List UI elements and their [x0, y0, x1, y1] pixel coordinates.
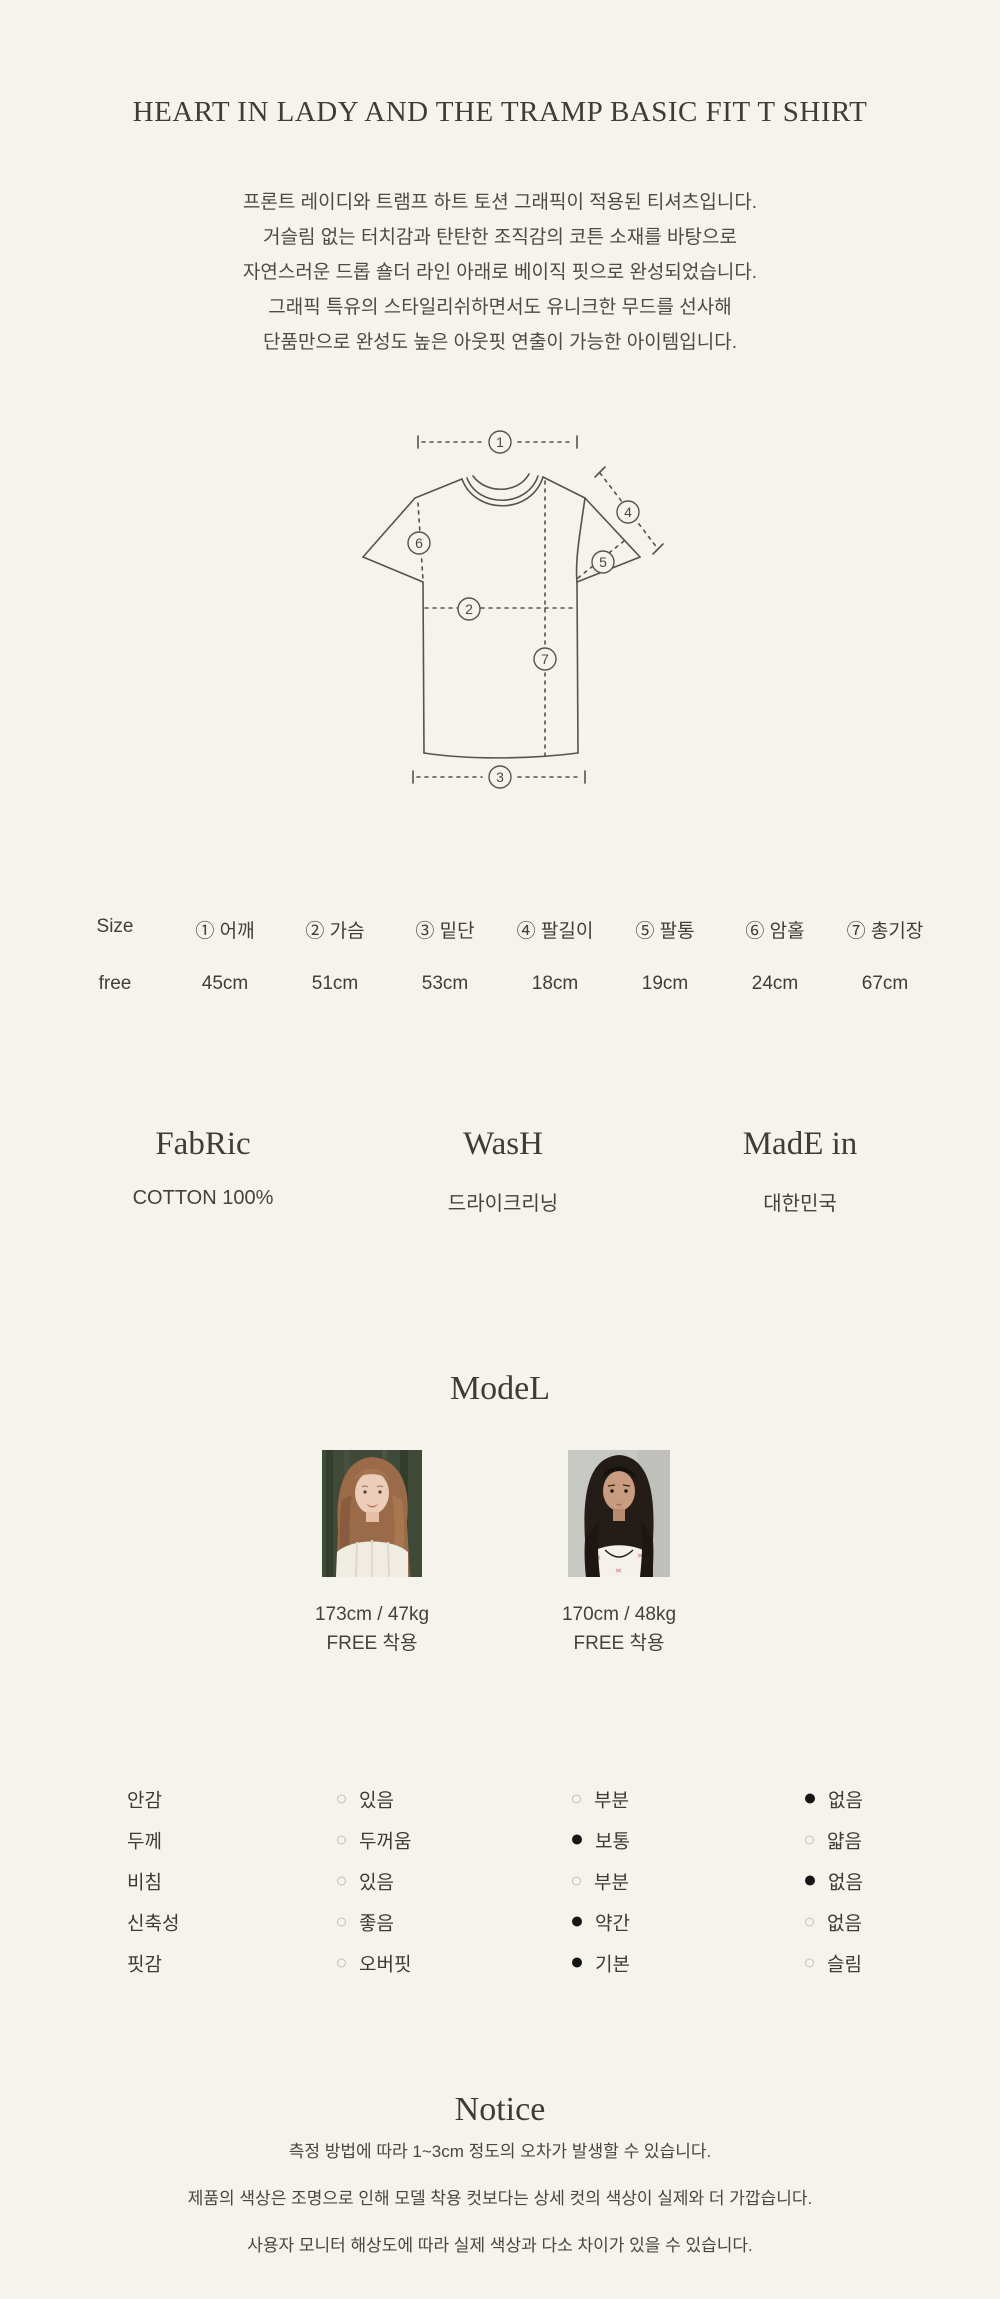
radio-icon [805, 1958, 814, 1967]
attribute-label: 비침 [127, 1867, 162, 1894]
attribute-option-label: 보통 [595, 1826, 630, 1853]
fabric-heading: FabRic [83, 1126, 323, 1163]
radio-icon [337, 1917, 346, 1926]
wash-section: WasH 드라이크리닝 [383, 1126, 623, 1216]
attribute-option: 부분 [572, 1785, 629, 1812]
attribute-option: 오버핏 [337, 1949, 411, 1976]
diagram-marker-3: 3 [496, 769, 504, 785]
attribute-option: 기본 [572, 1949, 630, 1976]
attribute-option-label: 없음 [827, 1908, 862, 1935]
wash-heading: WasH [383, 1126, 623, 1163]
attribute-option: 없음 [805, 1785, 863, 1812]
product-detail-page: HEART IN LADY AND THE TRAMP BASIC FIT T … [0, 0, 1000, 2299]
size-col-header: ⑥ 암홀 [720, 916, 830, 943]
diagram-marker-1: 1 [496, 434, 504, 450]
attribute-option-label: 없음 [828, 1785, 863, 1812]
attribute-row-fit: 핏감 오버핏 기본 슬림 [0, 1942, 1000, 1983]
notice-heading: Notice [0, 2091, 1000, 2129]
attribute-row-thickness: 두께 두꺼움 보통 얇음 [0, 1819, 1000, 1860]
size-cell: 45cm [170, 973, 280, 995]
radio-icon [805, 1917, 814, 1926]
size-col-header: ⑦ 총기장 [830, 916, 940, 943]
radio-icon [805, 1835, 814, 1844]
attribute-option: 없음 [805, 1908, 862, 1935]
size-cell: 19cm [610, 973, 720, 995]
notice-text: 측정 방법에 따라 1~3cm 정도의 오차가 발생할 수 있습니다. 제품의 … [0, 2128, 1000, 2269]
diagram-marker-2: 2 [465, 601, 473, 617]
diagram-marker-7: 7 [541, 651, 549, 667]
description-line: 프론트 레이디와 트램프 하트 토션 그래픽이 적용된 티셔츠입니다. [0, 185, 1000, 220]
description-line: 거슬림 없는 터치감과 탄탄한 조직감의 코튼 소재를 바탕으로 [0, 220, 1000, 255]
notice-line: 측정 방법에 따라 1~3cm 정도의 오차가 발생할 수 있습니다. [0, 2128, 1000, 2175]
attribute-label: 두께 [127, 1826, 162, 1853]
attribute-option: 얇음 [805, 1826, 862, 1853]
model-photo-dark-haired [568, 1450, 670, 1577]
model-stats: 173cm / 47kg [272, 1600, 472, 1629]
radio-icon [805, 1794, 815, 1804]
size-col-header: ① 어깨 [170, 916, 280, 943]
model-caption: 173cm / 47kg FREE 착용 [272, 1600, 472, 1658]
diagram-marker-4: 4 [624, 504, 632, 520]
diagram-marker-6: 6 [415, 535, 423, 551]
attribute-option-label: 있음 [359, 1785, 394, 1812]
attribute-option-label: 부분 [594, 1785, 629, 1812]
size-cell: 53cm [390, 973, 500, 995]
attribute-option-label: 좋음 [359, 1908, 394, 1935]
radio-icon [337, 1876, 346, 1885]
radio-icon [337, 1794, 346, 1803]
attribute-option-label: 없음 [828, 1867, 863, 1894]
product-title: HEART IN LADY AND THE TRAMP BASIC FIT T … [0, 96, 1000, 129]
attribute-option: 부분 [572, 1867, 629, 1894]
attribute-option-label: 슬림 [827, 1949, 862, 1976]
attribute-row-lining: 안감 있음 부분 없음 [0, 1778, 1000, 1819]
model-fit: FREE 착용 [519, 1629, 719, 1658]
attribute-table: 안감 있음 부분 없음 두께 두꺼움 보통 얇음 비침 있음 부분 없음 신축성… [0, 1778, 1000, 1983]
radio-icon [572, 1917, 582, 1927]
description-line: 그래픽 특유의 스타일리쉬하면서도 유니크한 무드를 선사해 [0, 290, 1000, 325]
radio-icon [337, 1835, 346, 1844]
attribute-label: 신축성 [127, 1908, 179, 1935]
fabric-value: COTTON 100% [83, 1187, 323, 1210]
size-col-header: ③ 밑단 [390, 916, 500, 943]
size-col-header: ② 가슴 [280, 916, 390, 943]
attribute-option-label: 부분 [594, 1867, 629, 1894]
attribute-option: 좋음 [337, 1908, 394, 1935]
notice-line: 사용자 모니터 해상도에 따라 실제 색상과 다소 차이가 있을 수 있습니다. [0, 2222, 1000, 2269]
radio-icon [572, 1958, 582, 1968]
radio-icon [805, 1876, 815, 1886]
attribute-row-stretch: 신축성 좋음 약간 없음 [0, 1901, 1000, 1942]
attribute-label: 핏감 [127, 1949, 162, 1976]
measurement-diagram: 1 2 3 4 5 6 7 [330, 425, 670, 800]
attribute-option-label: 약간 [595, 1908, 630, 1935]
made-in-heading: MadE in [680, 1126, 920, 1163]
model-photo-redhead [322, 1450, 422, 1577]
attribute-option-label: 있음 [359, 1867, 394, 1894]
attribute-row-sheerness: 비침 있음 부분 없음 [0, 1860, 1000, 1901]
model-stats: 170cm / 48kg [519, 1600, 719, 1629]
model-fit: FREE 착용 [272, 1629, 472, 1658]
size-col-header: ⑤ 팔통 [610, 916, 720, 943]
size-table: Size ① 어깨 ② 가슴 ③ 밑단 ④ 팔길이 ⑤ 팔통 ⑥ 암홀 ⑦ 총기… [60, 916, 940, 995]
size-table-row: free 45cm 51cm 53cm 18cm 19cm 24cm 67cm [60, 973, 940, 995]
attribute-option: 약간 [572, 1908, 630, 1935]
size-cell: 51cm [280, 973, 390, 995]
notice-line: 제품의 색상은 조명으로 인해 모델 착용 컷보다는 상세 컷의 색상이 실제와… [0, 2175, 1000, 2222]
radio-icon [572, 1835, 582, 1845]
attribute-option-label: 두꺼움 [359, 1826, 411, 1853]
attribute-option: 슬림 [805, 1949, 862, 1976]
attribute-label: 안감 [127, 1785, 162, 1812]
tshirt-line-drawing-icon: 1 2 3 4 5 6 7 [330, 425, 670, 800]
size-cell: 18cm [500, 973, 610, 995]
attribute-option: 없음 [805, 1867, 863, 1894]
attribute-option-label: 오버핏 [359, 1949, 411, 1976]
made-in-value: 대한민국 [680, 1187, 920, 1216]
size-col-header: Size [60, 916, 170, 943]
attribute-option: 있음 [337, 1867, 394, 1894]
diagram-marker-5: 5 [599, 554, 607, 570]
attribute-option: 두꺼움 [337, 1826, 411, 1853]
size-cell: free [60, 973, 170, 995]
size-col-header: ④ 팔길이 [500, 916, 610, 943]
attribute-option-label: 얇음 [827, 1826, 862, 1853]
radio-icon [572, 1876, 581, 1885]
radio-icon [572, 1794, 581, 1803]
size-cell: 67cm [830, 973, 940, 995]
size-cell: 24cm [720, 973, 830, 995]
attribute-option: 보통 [572, 1826, 630, 1853]
model-heading: ModeL [0, 1370, 1000, 1408]
fabric-section: FabRic COTTON 100% [83, 1126, 323, 1210]
attribute-option-label: 기본 [595, 1949, 630, 1976]
description-line: 단품만으로 완성도 높은 아웃핏 연출이 가능한 아이템입니다. [0, 325, 1000, 360]
model-caption: 170cm / 48kg FREE 착용 [519, 1600, 719, 1658]
radio-icon [337, 1958, 346, 1967]
wash-value: 드라이크리닝 [383, 1187, 623, 1216]
attribute-option: 있음 [337, 1785, 394, 1812]
description-line: 자연스러운 드롭 숄더 라인 아래로 베이직 핏으로 완성되었습니다. [0, 255, 1000, 290]
size-table-header: Size ① 어깨 ② 가슴 ③ 밑단 ④ 팔길이 ⑤ 팔통 ⑥ 암홀 ⑦ 총기… [60, 916, 940, 943]
made-in-section: MadE in 대한민국 [680, 1126, 920, 1216]
product-description: 프론트 레이디와 트램프 하트 토션 그래픽이 적용된 티셔츠입니다. 거슬림 … [0, 185, 1000, 360]
